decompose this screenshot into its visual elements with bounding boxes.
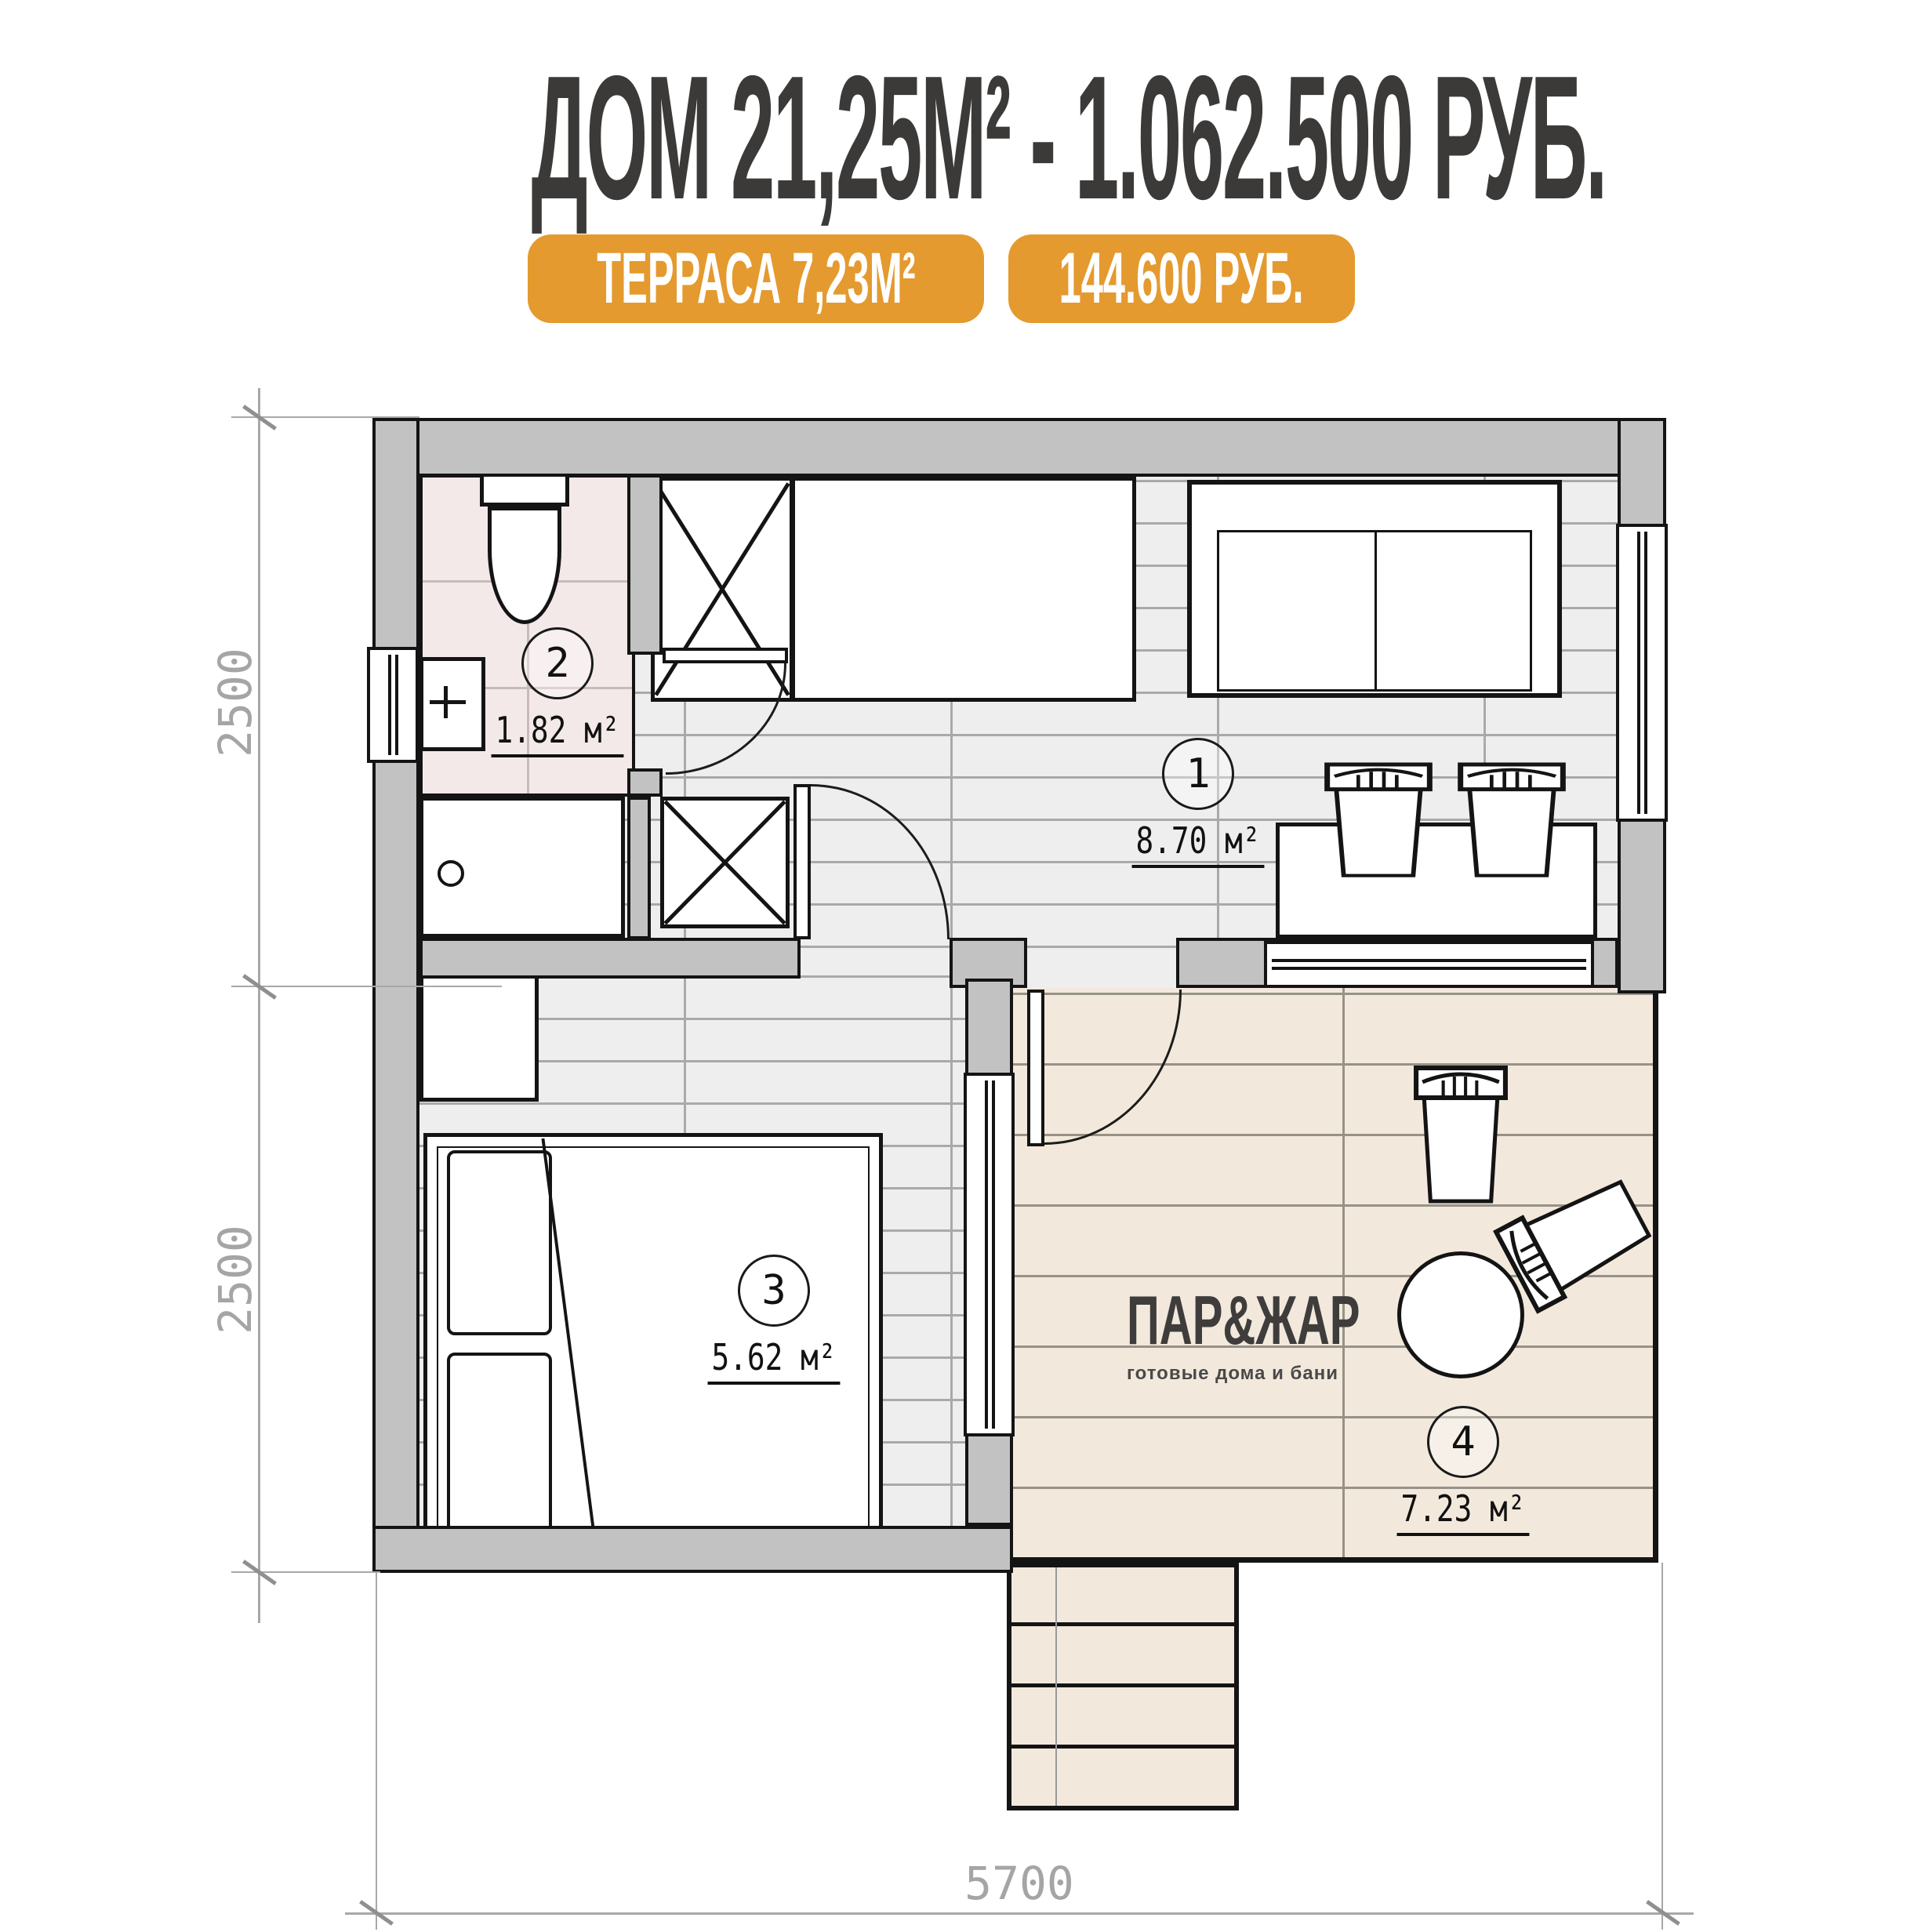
bathroom-door-leaf (663, 648, 788, 663)
room-number-badge: 1 (1162, 738, 1234, 810)
room-label-living: 1 8.70 м² (1100, 738, 1296, 868)
shower-tray (419, 797, 625, 938)
shower-drain-icon (438, 860, 464, 887)
page-title: ДОМ 21,25М² - 1.062.500 РУБ. (532, 53, 1401, 222)
wall-top (372, 418, 1666, 477)
room-number-badge: 2 (521, 627, 594, 699)
sofa-divider (1375, 530, 1377, 692)
window-bedroom-terrace (964, 1073, 1015, 1436)
dimension-left-top: 2500 (209, 624, 256, 781)
wall-bottom (372, 1526, 1013, 1573)
room-number-badge: 4 (1427, 1406, 1499, 1478)
room-label-bathroom: 2 1.82 м² (459, 627, 655, 757)
sofa (1187, 480, 1562, 698)
nightstand (419, 968, 539, 1102)
room-area-text: 7.23 м² (1397, 1487, 1530, 1536)
brand-logo-tagline: готовые дома и бани (1127, 1363, 1480, 1385)
wall-shower-right (627, 797, 651, 939)
dining-chair (1324, 761, 1433, 878)
terrace-area-badge-label: ТЕРРАСА 7,23М² (597, 238, 915, 320)
room-area-text: 8.70 м² (1132, 819, 1265, 868)
extension-line (231, 1571, 380, 1573)
steps-joint-line (1055, 1567, 1057, 1806)
terrace-steps (1007, 1563, 1239, 1810)
bedroom-door-leaf (793, 784, 811, 939)
room-label-terrace: 4 7.23 м² (1365, 1406, 1561, 1536)
dimension-left-bottom: 2500 (209, 1201, 256, 1358)
floor-plan-poster: ДОМ 21,25М² - 1.062.500 РУБ. ТЕРРАСА 7,2… (0, 0, 1932, 1932)
dimension-bottom: 5700 (941, 1857, 1098, 1904)
extension-line (1661, 1563, 1663, 1930)
dining-chair (1457, 761, 1567, 878)
wall-left (372, 418, 419, 1573)
kitchen-counter (791, 477, 1136, 702)
extension-line (376, 1573, 377, 1930)
dimension-line-left (258, 388, 260, 1623)
terrace-chair (1413, 1063, 1509, 1204)
terrace-price-badge-label: 144.600 РУБ. (1059, 238, 1304, 320)
room-number-badge: 3 (738, 1255, 810, 1327)
wall-bedroom-top (419, 938, 801, 979)
entrance-door-leaf (1027, 990, 1044, 1146)
window-living-terrace (1264, 941, 1594, 988)
tap-icon (444, 686, 448, 718)
window-bathroom (367, 647, 419, 763)
cabinet-x-icon (663, 799, 787, 926)
room-area-text: 1.82 м² (492, 709, 624, 757)
brand-logo: ПАР&ЖАР готовые дома и бани (1127, 1286, 1480, 1385)
brand-logo-text: ПАР&ЖАР (1127, 1286, 1360, 1355)
extension-line (231, 986, 502, 987)
wall-bathroom-right-lower (627, 768, 663, 797)
terrace-price-badge: 144.600 РУБ. (1008, 234, 1355, 323)
window-living-right (1616, 524, 1668, 822)
terrace-area-badge: ТЕРРАСА 7,23М² (528, 234, 984, 323)
room-area-text: 5.62 м² (708, 1336, 841, 1385)
dimension-line-bottom (345, 1912, 1694, 1915)
room-label-bedroom: 3 5.62 м² (676, 1255, 872, 1385)
hall-cabinet (660, 797, 790, 928)
